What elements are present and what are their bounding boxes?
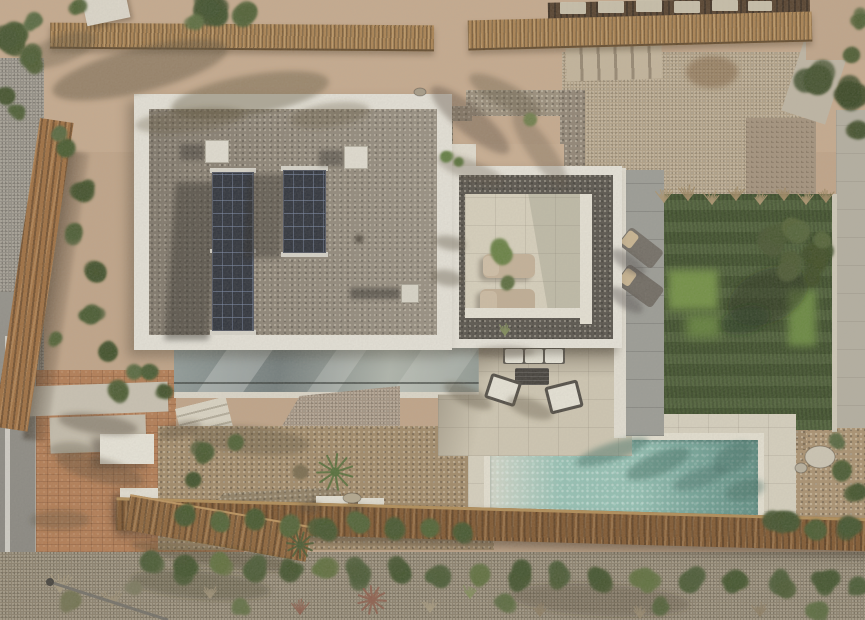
aerial-photo-villa: [0, 0, 865, 620]
vegetation-layer: [0, 0, 865, 620]
cast-shadows: [20, 24, 818, 620]
stepping-stones-top: [560, 0, 772, 14]
